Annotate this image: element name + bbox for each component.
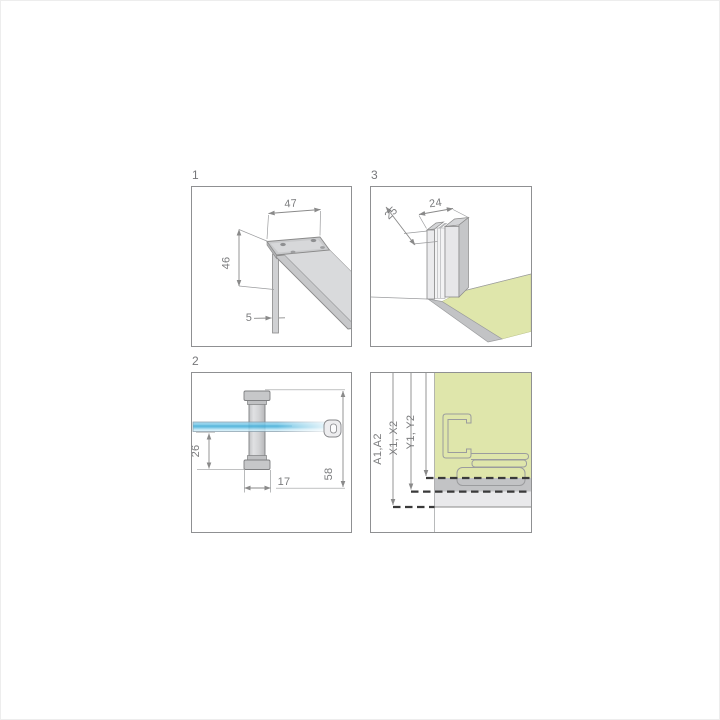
panel4-adjustment-detail: A1,A2 X1, X2 Y1, Y2: [370, 372, 532, 533]
dimension-17: 17: [245, 470, 291, 493]
glass-end-clamp: [324, 420, 341, 437]
diagram-canvas: 1 3 2: [0, 0, 720, 720]
wall-line-left: [371, 297, 427, 299]
dim-17-label: 17: [278, 476, 291, 488]
dim-24-label: 24: [428, 197, 442, 211]
range-label-a: A1,A2: [372, 433, 384, 464]
glass-edge: [273, 254, 279, 333]
screw-hole: [280, 243, 286, 246]
panel1-bracket-detail: 47 46 5: [191, 186, 352, 347]
panel1-number: 1: [192, 168, 199, 182]
lower-strip: [435, 492, 532, 508]
dimension-58: 58: [265, 390, 345, 488]
panel2-number: 2: [192, 354, 199, 368]
range-label-x: X1, X2: [388, 421, 400, 456]
panel1-drawing: 47 46 5: [192, 187, 351, 346]
dim-47-label: 47: [284, 198, 298, 211]
screw-hole: [320, 246, 325, 249]
dim-5-label: 5: [246, 312, 252, 324]
panel2-knob-detail: 26 17 58: [191, 372, 352, 533]
panel3-number: 3: [371, 168, 378, 182]
dim-25-label: 25: [383, 205, 401, 223]
dim-58-label: 58: [323, 468, 335, 481]
dimension-46: 46: [221, 230, 275, 290]
panel3-drawing: 24 25: [371, 187, 531, 346]
panel4-drawing: A1,A2 X1, X2 Y1, Y2: [371, 373, 531, 532]
dimension-26: 26: [192, 432, 244, 470]
panel3-wall-profile-detail: 24 25: [370, 186, 532, 347]
dim-46-label: 46: [221, 257, 233, 270]
glass-strip: [435, 478, 532, 492]
dimension-47: 47: [267, 198, 321, 239]
glass-panel: [193, 422, 325, 433]
dimension-5: 5: [246, 312, 285, 324]
range-label-y: Y1, Y2: [405, 415, 417, 450]
screw-hole: [311, 239, 317, 242]
wall-profile: [427, 218, 469, 300]
dim-26-label: 26: [192, 445, 202, 458]
tray-area: [435, 373, 532, 478]
support-bar: [275, 250, 351, 330]
panel2-drawing: 26 17 58: [192, 373, 351, 532]
screw-hole: [291, 251, 296, 254]
